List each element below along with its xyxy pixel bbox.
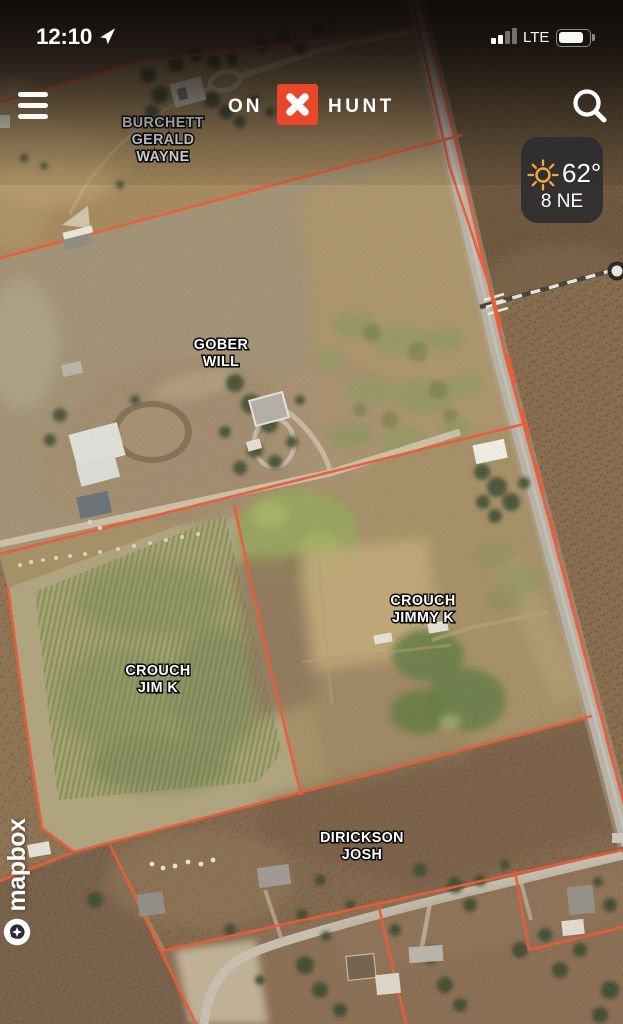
svg-text:WILL: WILL: [203, 354, 240, 370]
svg-text:JOSH: JOSH: [342, 847, 383, 863]
svg-text:JIM K: JIM K: [138, 680, 178, 696]
svg-text:JIMMY K: JIMMY K: [392, 610, 454, 626]
svg-text:CROUCH: CROUCH: [125, 663, 190, 679]
svg-text:GOBER: GOBER: [194, 337, 249, 353]
svg-text:CROUCH: CROUCH: [390, 593, 455, 609]
svg-text:DIRICKSON: DIRICKSON: [320, 830, 404, 846]
